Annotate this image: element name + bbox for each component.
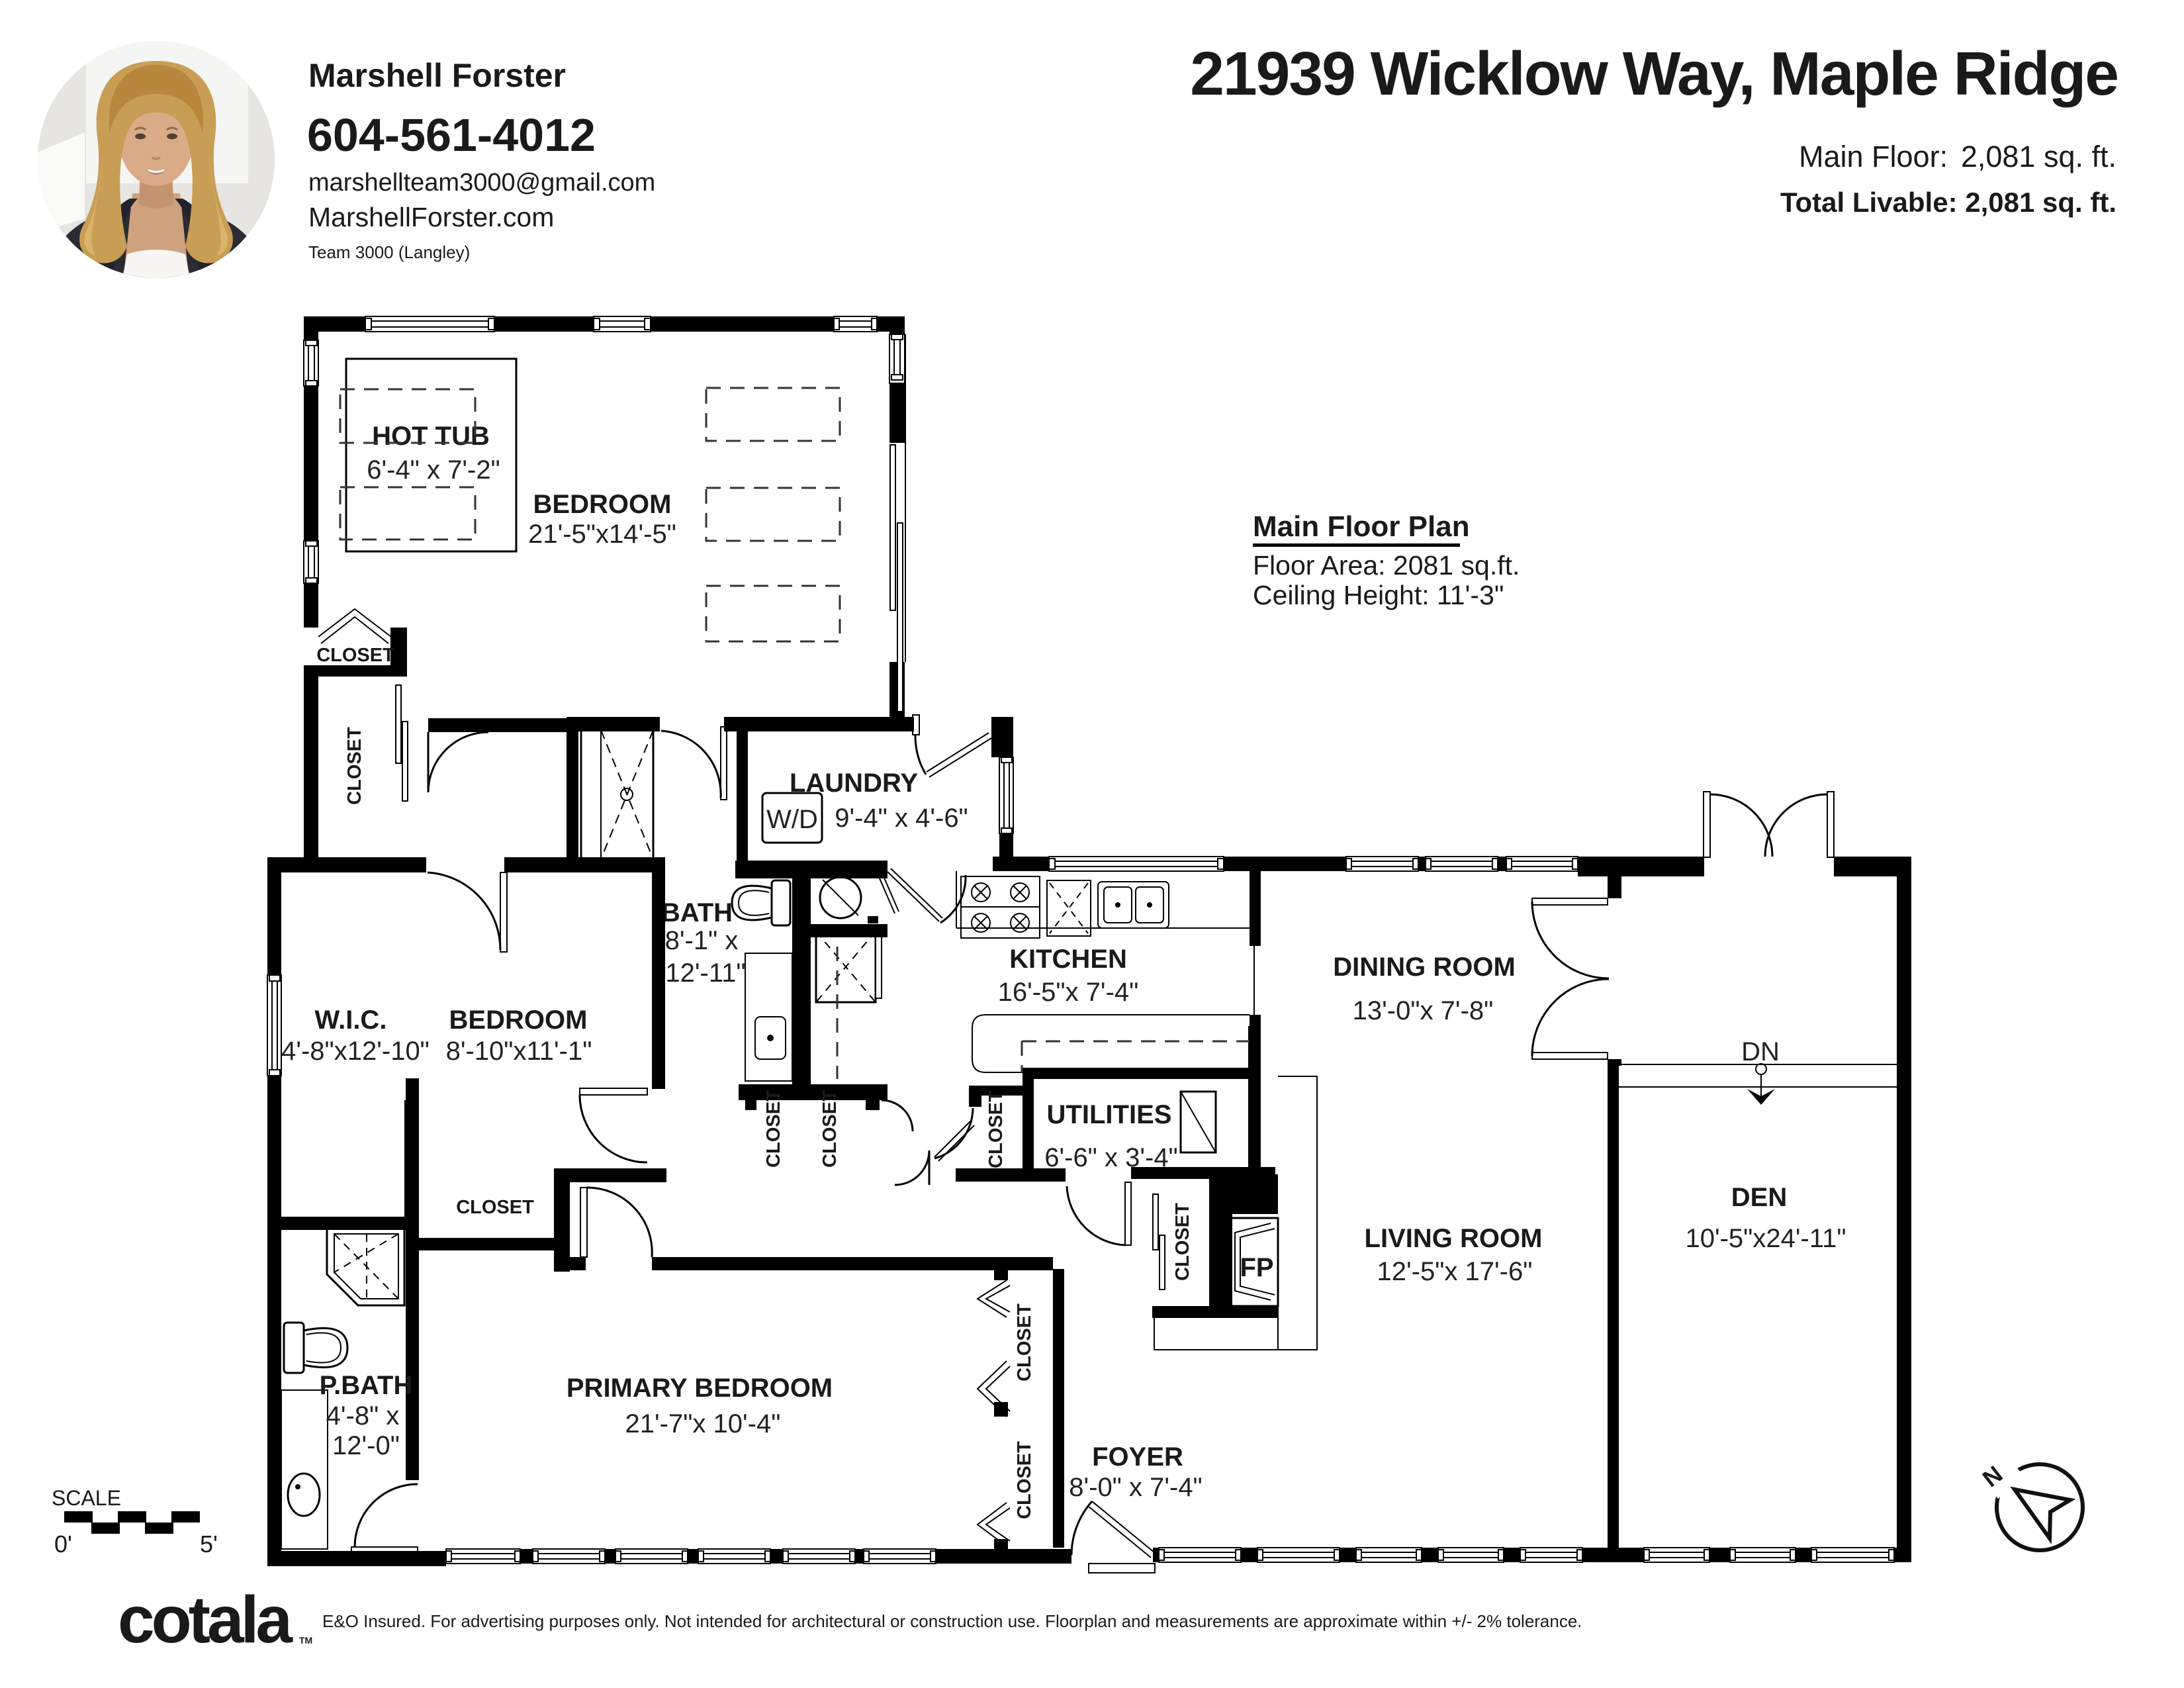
- svg-text:604-561-4012: 604-561-4012: [307, 109, 596, 161]
- svg-text:FOYER: FOYER: [1092, 1442, 1183, 1472]
- svg-text:12'-11": 12'-11": [665, 959, 745, 988]
- svg-text:Main Floor Plan: Main Floor Plan: [1253, 510, 1470, 543]
- svg-text:W/D: W/D: [766, 805, 818, 834]
- svg-text:6'-6" x 3'-4": 6'-6" x 3'-4": [1044, 1143, 1178, 1172]
- svg-text:LIVING ROOM: LIVING ROOM: [1365, 1224, 1543, 1253]
- svg-text:marshellteam3000@gmail.com: marshellteam3000@gmail.com: [308, 169, 655, 197]
- svg-text:2,081 sq. ft.: 2,081 sq. ft.: [1961, 140, 2116, 173]
- svg-text:CLOSET: CLOSET: [344, 727, 365, 805]
- svg-text:E&O Insured. For advertising p: E&O Insured. For advertising purposes on…: [322, 1611, 1582, 1631]
- svg-text:Floor Area: 2081 sq.ft.: Floor Area: 2081 sq.ft.: [1253, 550, 1520, 581]
- svg-text:FP: FP: [1240, 1253, 1273, 1282]
- svg-text:LAUNDRY: LAUNDRY: [790, 769, 918, 798]
- svg-text:8'-10"x11'-1": 8'-10"x11'-1": [446, 1037, 592, 1066]
- svg-text:CLOSET: CLOSET: [819, 1090, 841, 1168]
- svg-text:CLOSET: CLOSET: [456, 1197, 534, 1218]
- svg-text:8'-0" x 7'-4": 8'-0" x 7'-4": [1069, 1473, 1203, 1502]
- svg-text:BEDROOM: BEDROOM: [533, 490, 672, 519]
- svg-text:DINING ROOM: DINING ROOM: [1333, 953, 1516, 982]
- svg-text:4'-8"x12'-10": 4'-8"x12'-10": [281, 1037, 430, 1066]
- svg-text:9'-4" x 4'-6": 9'-4" x 4'-6": [835, 804, 968, 833]
- svg-text:10'-5"x24'-11": 10'-5"x24'-11": [1685, 1224, 1846, 1253]
- svg-text:CLOSET: CLOSET: [1014, 1303, 1035, 1382]
- svg-text:CLOSET: CLOSET: [1172, 1203, 1193, 1281]
- svg-text:Team 3000 (Langley): Team 3000 (Langley): [308, 242, 470, 262]
- svg-text:CLOSET: CLOSET: [1014, 1441, 1035, 1519]
- svg-text:BEDROOM: BEDROOM: [449, 1006, 588, 1035]
- svg-text:CLOSET: CLOSET: [985, 1090, 1007, 1168]
- svg-text:W.I.C.: W.I.C.: [315, 1006, 387, 1035]
- svg-text:SCALE: SCALE: [52, 1486, 121, 1510]
- svg-text:UTILITIES: UTILITIES: [1047, 1100, 1172, 1129]
- svg-text:12'-5"x 17'-6": 12'-5"x 17'-6": [1377, 1257, 1533, 1286]
- svg-text:BATH: BATH: [661, 898, 733, 927]
- svg-text:DEN: DEN: [1731, 1183, 1787, 1212]
- svg-text:Marshell Forster: Marshell Forster: [308, 57, 566, 94]
- svg-text:16'-5"x 7'-4": 16'-5"x 7'-4": [998, 978, 1139, 1007]
- svg-text:8'-1" x: 8'-1" x: [665, 926, 739, 955]
- svg-text:HOT TUB: HOT TUB: [372, 422, 490, 451]
- svg-text:Main Floor:: Main Floor:: [1799, 140, 1948, 173]
- svg-text:0': 0': [54, 1530, 72, 1558]
- svg-text:Total Livable: 2,081 sq. ft.: Total Livable: 2,081 sq. ft.: [1780, 187, 2116, 218]
- svg-text:Ceiling Height: 11'-3": Ceiling Height: 11'-3": [1253, 580, 1504, 610]
- svg-text:CLOSET: CLOSET: [316, 645, 394, 666]
- svg-text:12'-0": 12'-0": [332, 1431, 400, 1460]
- svg-text:KITCHEN: KITCHEN: [1009, 945, 1127, 974]
- svg-text:cotala: cotala: [118, 1583, 293, 1657]
- svg-text:21'-7"x 10'-4": 21'-7"x 10'-4": [625, 1409, 781, 1438]
- svg-text:PRIMARY BEDROOM: PRIMARY BEDROOM: [567, 1374, 833, 1403]
- svg-text:CLOSET: CLOSET: [763, 1090, 784, 1168]
- svg-text:DN: DN: [1741, 1037, 1780, 1066]
- svg-text:MarshellForster.com: MarshellForster.com: [308, 202, 554, 232]
- svg-text:TM: TM: [299, 1635, 312, 1646]
- svg-text:21'-5"x14'-5": 21'-5"x14'-5": [528, 520, 676, 549]
- svg-text:5': 5': [200, 1530, 218, 1558]
- svg-text:21939 Wicklow Way, Maple Ridge: 21939 Wicklow Way, Maple Ridge: [1190, 39, 2118, 108]
- svg-text:P.BATH: P.BATH: [320, 1371, 413, 1400]
- svg-text:6'-4" x 7'-2": 6'-4" x 7'-2": [367, 455, 500, 485]
- svg-text:13'-0"x 7'-8": 13'-0"x 7'-8": [1353, 996, 1494, 1025]
- svg-text:4'-8" x: 4'-8" x: [326, 1401, 400, 1430]
